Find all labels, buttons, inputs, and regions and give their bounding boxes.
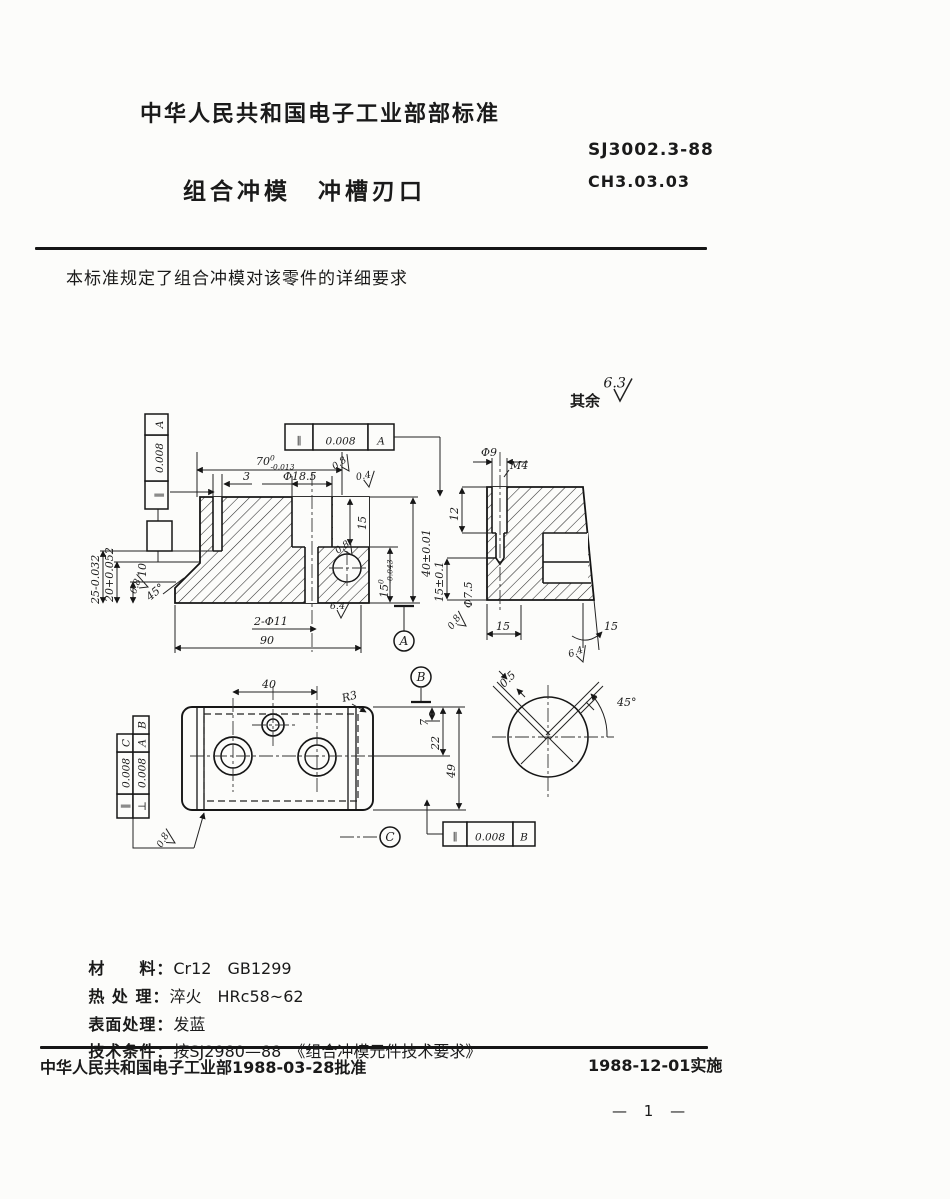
svg-text:B: B (136, 721, 148, 730)
svg-text:6.4: 6.4 (567, 645, 585, 661)
datum-circle: C (380, 827, 400, 847)
svg-text:700-0.013: 700-0.013 (256, 454, 295, 472)
datum-target-box (147, 521, 172, 551)
svg-text:6.4: 6.4 (330, 601, 345, 612)
svg-text:0.008: 0.008 (475, 832, 505, 844)
dim-label: Φ18.5 (283, 470, 317, 483)
svg-text:20+0.052: 20+0.052 (103, 547, 116, 603)
dim-label: 12 (448, 507, 461, 521)
svg-text:12: 12 (448, 507, 461, 521)
svg-text:7: 7 (418, 719, 431, 726)
svg-text:R3: R3 (339, 688, 358, 705)
svg-text:0.008: 0.008 (136, 758, 148, 788)
svg-text:3: 3 (243, 470, 250, 483)
svg-text:10: 10 (136, 563, 149, 577)
svg-text:M4: M4 (509, 459, 528, 472)
svg-text:Φ9: Φ9 (481, 446, 497, 459)
datum-circle: A (394, 631, 414, 651)
svg-text:⊥: ⊥ (136, 801, 148, 811)
svg-text:0.008: 0.008 (325, 435, 355, 447)
svg-text:A: A (154, 420, 166, 429)
svg-text:Φ18.5: Φ18.5 (283, 470, 317, 483)
dim-label: 49 (445, 764, 458, 779)
svg-text:45°: 45° (616, 696, 637, 709)
svg-text:2-Φ11: 2-Φ11 (253, 615, 288, 628)
dim-label: 90 (260, 634, 274, 647)
dim-label: 700-0.013 (256, 454, 295, 472)
plan-view (133, 686, 466, 848)
feature-control-frame: ∥0.008A (285, 424, 394, 450)
feature-control-frame: ∥0.008C (117, 734, 133, 818)
dim-label: Φ7.5 (462, 581, 475, 608)
dim-label: 7 (418, 719, 431, 726)
svg-text:其余: 其余 (570, 392, 601, 410)
dim-label: 40 (261, 678, 276, 691)
datum-circle: B (411, 667, 431, 687)
dim-label: 10 (136, 563, 149, 577)
dim-label: R3 (339, 688, 358, 705)
feature-control-frame: ∥0.008B (443, 822, 535, 846)
surface-finish-mark: 6.4 (567, 643, 591, 666)
svg-text:15: 15 (496, 620, 510, 633)
surface-finish-mark: 0.8 (330, 452, 355, 477)
dim-label: 15 (496, 620, 510, 633)
svg-text:∥: ∥ (120, 804, 132, 809)
surface-finish-mark: 0.8 (446, 610, 471, 635)
svg-text:C: C (120, 739, 132, 747)
svg-text:49: 49 (445, 764, 458, 779)
svg-text:0.008: 0.008 (154, 443, 166, 473)
svg-text:6.3: 6.3 (603, 376, 626, 392)
dim-label: 45° (143, 581, 167, 604)
svg-text:45°: 45° (143, 581, 167, 604)
approval-note: 中华人民共和国电子工业部1988-03-28批准 (40, 1054, 366, 1078)
surface-finish-mark: 6.3 (603, 376, 632, 402)
dim-label: 15±0.1 (433, 561, 446, 602)
feature-control-frame: ⊥0.008AB (133, 716, 149, 818)
surface-finish-mark: 0.8 (155, 828, 179, 853)
svg-text:0.4: 0.4 (355, 470, 372, 483)
dim-label: 15 (604, 620, 618, 633)
dim-label: 150-0.043 (377, 559, 395, 598)
dim-label: Φ9 (481, 446, 497, 459)
svg-text:∥: ∥ (453, 832, 458, 844)
dim-label: 其余 (570, 392, 601, 410)
dim-label: 20+0.052 (103, 547, 116, 603)
surface-finish-mark: 0.4 (355, 469, 377, 489)
dim-label: M4 (509, 459, 528, 472)
dim-label: 3 (243, 470, 250, 483)
implementation-note: 1988-12-01实施 (588, 1052, 722, 1076)
svg-text:A: A (399, 634, 409, 648)
svg-text:25-0.032: 25-0.032 (89, 555, 102, 605)
dim-label: 40±0.01 (420, 529, 433, 578)
feature-control-frame: ∥0.008A (145, 414, 168, 509)
standard-document-page: 中华人民共和国电子工业部部标准 SJ3002.3-88 CH3.03.03 组合… (0, 0, 950, 1199)
svg-text:0.008: 0.008 (120, 758, 132, 788)
svg-text:∥: ∥ (154, 493, 166, 498)
detail-view (492, 671, 614, 797)
svg-text:B: B (519, 832, 528, 844)
dim-label: 22 (429, 736, 442, 751)
svg-text:∥: ∥ (297, 435, 302, 447)
svg-text:15: 15 (604, 620, 618, 633)
side-section-view (447, 452, 602, 650)
dim-label: 45° (616, 696, 637, 709)
dim-label: 25-0.032 (89, 555, 102, 605)
svg-text:150-0.043: 150-0.043 (377, 559, 395, 598)
svg-text:B: B (416, 670, 426, 684)
dim-label: 15 (356, 516, 369, 530)
svg-text:15: 15 (356, 516, 369, 530)
svg-text:40: 40 (261, 678, 276, 691)
svg-text:Φ7.5: Φ7.5 (462, 581, 475, 608)
svg-text:15±0.1: 15±0.1 (433, 561, 446, 602)
svg-text:22: 22 (429, 736, 442, 751)
page-number: — 1 — (612, 1102, 691, 1120)
svg-text:C: C (385, 830, 394, 844)
dim-label: 2-Φ11 (253, 615, 288, 628)
svg-text:90: 90 (260, 634, 274, 647)
svg-text:40±0.01: 40±0.01 (420, 529, 433, 578)
svg-text:A: A (136, 739, 148, 748)
svg-text:A: A (376, 435, 385, 447)
footer-rule (40, 1046, 708, 1049)
